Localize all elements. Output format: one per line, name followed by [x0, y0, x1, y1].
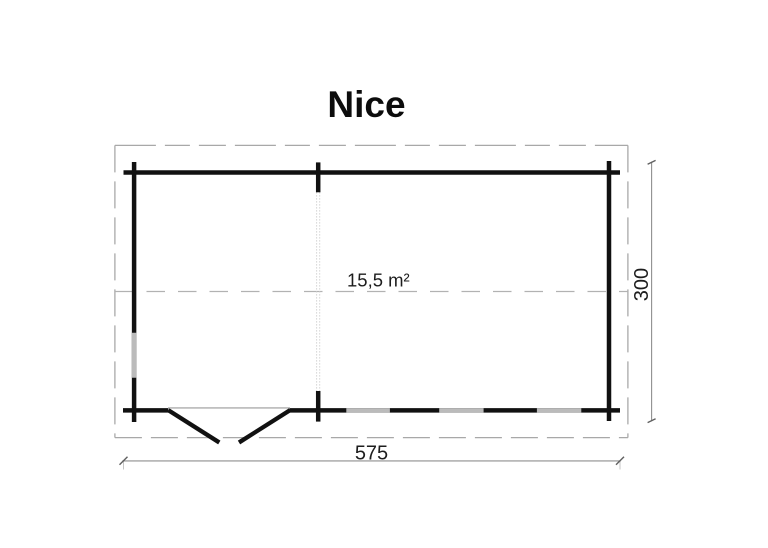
svg-text:15,5 m²: 15,5 m²: [347, 270, 410, 291]
svg-text:Nice: Nice: [327, 84, 405, 125]
svg-text:575: 575: [355, 443, 388, 465]
svg-text:300: 300: [631, 268, 653, 301]
